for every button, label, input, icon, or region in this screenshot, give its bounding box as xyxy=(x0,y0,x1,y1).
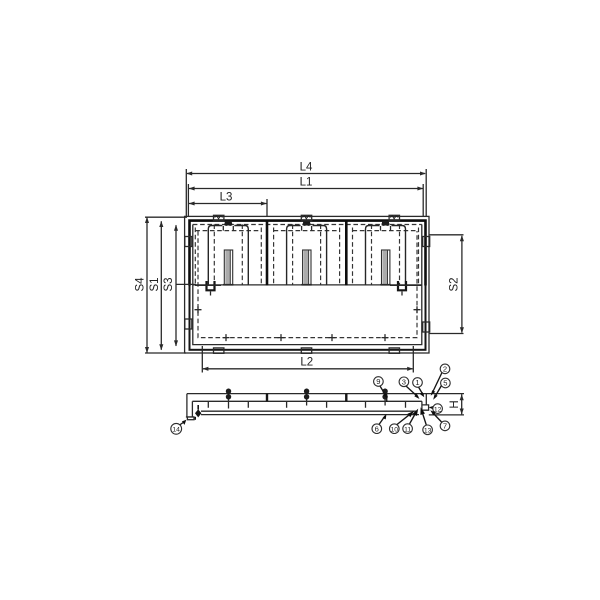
svg-text:S2: S2 xyxy=(449,277,461,291)
svg-text:2: 2 xyxy=(443,365,447,374)
svg-text:L3: L3 xyxy=(220,192,233,204)
svg-text:6: 6 xyxy=(375,424,379,433)
svg-text:H: H xyxy=(449,400,461,408)
svg-text:3: 3 xyxy=(402,378,406,387)
svg-text:S4: S4 xyxy=(134,277,146,292)
svg-text:5: 5 xyxy=(443,379,447,388)
svg-text:9: 9 xyxy=(376,377,380,386)
svg-text:L2: L2 xyxy=(300,357,313,369)
svg-text:S3: S3 xyxy=(163,277,175,291)
svg-text:12: 12 xyxy=(434,406,442,413)
svg-text:L4: L4 xyxy=(300,162,313,174)
svg-text:L1: L1 xyxy=(300,177,313,189)
svg-text:1: 1 xyxy=(415,378,419,387)
svg-text:7: 7 xyxy=(443,422,447,431)
svg-text:14: 14 xyxy=(172,427,180,434)
svg-text:10: 10 xyxy=(391,426,399,433)
svg-text:S1: S1 xyxy=(149,277,161,291)
svg-text:13: 13 xyxy=(424,428,432,435)
svg-text:11: 11 xyxy=(404,426,411,433)
